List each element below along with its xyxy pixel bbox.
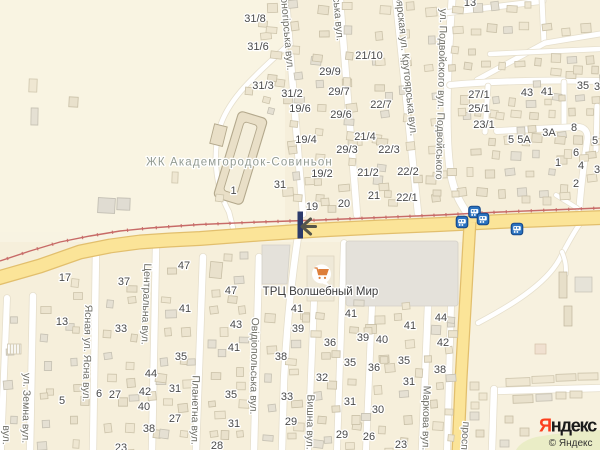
svg-text:41: 41 (404, 320, 416, 332)
svg-text:38: 38 (275, 351, 287, 363)
svg-text:41: 41 (291, 303, 303, 315)
svg-text:40: 40 (376, 334, 388, 346)
svg-text:13: 13 (464, 0, 476, 9)
svg-text:22/2: 22/2 (397, 166, 418, 178)
svg-text:42: 42 (437, 337, 449, 349)
svg-text:35: 35 (225, 389, 237, 401)
svg-text:1: 1 (230, 185, 236, 197)
svg-text:5: 5 (508, 134, 514, 146)
svg-text:36: 36 (368, 362, 380, 374)
svg-text:Маркова вул.: Маркова вул. (419, 386, 432, 450)
svg-text:31/2: 31/2 (281, 88, 302, 100)
svg-text:32: 32 (316, 372, 328, 384)
svg-text:21: 21 (368, 190, 380, 202)
svg-text:31: 31 (274, 179, 286, 191)
svg-text:Планетна вул.: Планетна вул. (188, 375, 201, 445)
svg-text:3: 3 (594, 81, 600, 93)
svg-text:41: 41 (228, 342, 240, 354)
svg-text:23: 23 (395, 439, 407, 450)
svg-text:33: 33 (281, 391, 293, 403)
svg-text:29/7: 29/7 (328, 86, 349, 98)
svg-text:31/8: 31/8 (244, 13, 265, 25)
svg-text:31: 31 (169, 383, 181, 395)
svg-text:Вишна вул.: Вишна вул. (304, 394, 317, 449)
svg-text:6: 6 (573, 147, 579, 159)
svg-text:19: 19 (306, 201, 318, 213)
svg-text:36: 36 (324, 337, 336, 349)
svg-text:38: 38 (143, 423, 155, 435)
svg-text:2: 2 (573, 178, 579, 190)
svg-text:29/3: 29/3 (336, 144, 357, 156)
svg-text:21/2: 21/2 (357, 167, 378, 179)
svg-text:4: 4 (578, 160, 584, 172)
svg-text:ТРЦ Волшебный Мир: ТРЦ Волшебный Мир (263, 286, 379, 298)
svg-text:ул. Земна вул.: ул. Земна вул. (19, 373, 32, 444)
svg-text:33: 33 (115, 323, 127, 335)
svg-text:27/1: 27/1 (468, 89, 489, 101)
svg-text:20: 20 (338, 198, 350, 210)
svg-text:просп.: просп. (458, 421, 472, 450)
svg-text:вул.: вул. (0, 425, 12, 445)
svg-text:31: 31 (403, 376, 415, 388)
svg-text:13: 13 (56, 316, 68, 328)
svg-text:19/4: 19/4 (295, 134, 316, 146)
svg-text:27: 27 (109, 389, 121, 401)
svg-text:44: 44 (145, 368, 157, 380)
svg-text:19/6: 19/6 (289, 103, 310, 115)
svg-text:31/3: 31/3 (252, 80, 273, 92)
svg-text:22/3: 22/3 (378, 144, 399, 156)
svg-text:22/7: 22/7 (370, 99, 391, 111)
svg-text:40: 40 (138, 401, 150, 413)
svg-text:31/6: 31/6 (247, 41, 268, 53)
svg-text:3: 3 (594, 164, 600, 176)
svg-text:41: 41 (179, 303, 191, 315)
svg-text:Ясная ул. Ясна вул.: Ясная ул. Ясна вул. (80, 305, 95, 402)
svg-text:35: 35 (577, 80, 589, 92)
svg-text:47: 47 (178, 260, 190, 272)
svg-text:39: 39 (292, 323, 304, 335)
svg-text:29/9: 29/9 (319, 66, 340, 78)
svg-text:39: 39 (357, 332, 369, 344)
svg-text:27: 27 (169, 413, 181, 425)
svg-text:23: 23 (115, 442, 127, 450)
svg-text:38: 38 (434, 364, 446, 376)
svg-text:29: 29 (336, 429, 348, 441)
svg-text:30: 30 (372, 404, 384, 416)
svg-text:41: 41 (541, 86, 553, 98)
svg-text:19/2: 19/2 (311, 168, 332, 180)
svg-text:ЖК Академгородок-Совиньон: ЖК Академгородок-Совиньон (146, 157, 333, 169)
svg-text:37: 37 (118, 276, 130, 288)
svg-text:35: 35 (398, 355, 410, 367)
svg-text:35: 35 (344, 357, 356, 369)
svg-text:43: 43 (521, 87, 533, 99)
svg-text:5: 5 (592, 135, 598, 147)
svg-text:42: 42 (139, 386, 151, 398)
svg-text:21/4: 21/4 (354, 131, 375, 143)
svg-text:43: 43 (230, 319, 242, 331)
svg-text:47: 47 (225, 285, 237, 297)
svg-text:21/10: 21/10 (355, 50, 383, 62)
svg-text:22/1: 22/1 (396, 192, 417, 204)
svg-text:5А: 5А (517, 134, 531, 146)
svg-text:8: 8 (571, 122, 577, 134)
svg-text:1: 1 (555, 157, 561, 169)
svg-text:29/6: 29/6 (330, 109, 351, 121)
svg-text:44: 44 (435, 312, 447, 324)
svg-text:Овідіопольська вул.: Овідіопольська вул. (247, 317, 261, 414)
svg-text:Яндекс: Яндекс (539, 416, 597, 436)
svg-text:17: 17 (59, 272, 71, 284)
svg-text:35: 35 (175, 351, 187, 363)
svg-text:28: 28 (211, 440, 223, 450)
svg-text:25/1: 25/1 (468, 103, 489, 115)
svg-text:5: 5 (59, 395, 65, 407)
svg-text:6: 6 (96, 388, 102, 400)
svg-text:31: 31 (344, 396, 356, 408)
svg-text:31: 31 (228, 418, 240, 430)
svg-text:3А: 3А (542, 127, 556, 139)
svg-text:41: 41 (345, 308, 357, 320)
svg-text:26: 26 (363, 431, 375, 443)
svg-text:© Яндекс: © Яндекс (549, 438, 593, 449)
svg-text:23/1: 23/1 (473, 119, 494, 131)
svg-text:29: 29 (285, 416, 297, 428)
